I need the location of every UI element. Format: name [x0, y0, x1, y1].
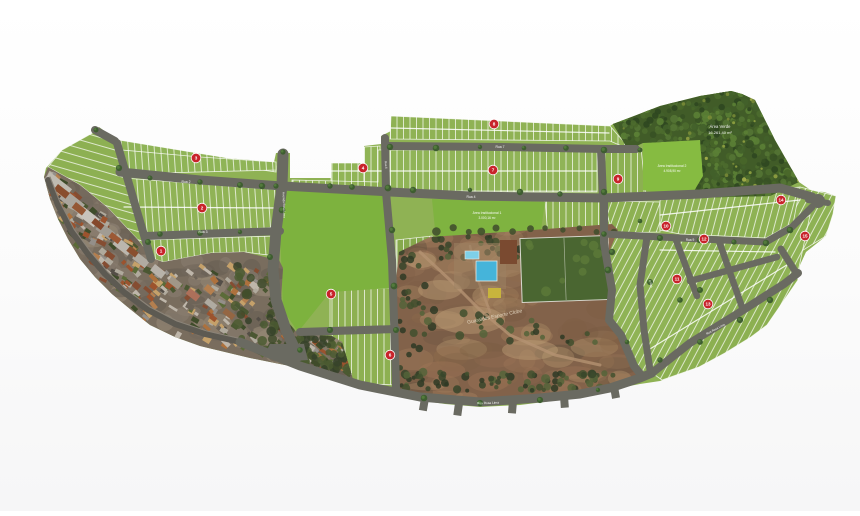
svg-text:8: 8 — [493, 122, 496, 127]
svg-text:Rua 3: Rua 3 — [198, 230, 207, 234]
svg-text:14: 14 — [778, 198, 784, 203]
svg-text:7: 7 — [492, 168, 495, 173]
svg-text:6: 6 — [389, 353, 392, 358]
svg-text:16.261,40 m²: 16.261,40 m² — [708, 130, 732, 135]
svg-text:15: 15 — [802, 234, 808, 239]
svg-text:1: 1 — [160, 249, 163, 254]
svg-text:Área Verde: Área Verde — [710, 124, 732, 129]
svg-text:10: 10 — [663, 224, 669, 229]
svg-text:Rua Rosa Lima: Rua Rosa Lima — [477, 401, 499, 406]
svg-text:Rua 2: Rua 2 — [181, 180, 190, 184]
svg-text:3: 3 — [195, 156, 198, 161]
svg-text:Área Institucional 2: Área Institucional 2 — [658, 164, 687, 168]
svg-text:Rua 4: Rua 4 — [466, 195, 475, 199]
svg-text:4: 4 — [362, 166, 365, 171]
svg-text:9: 9 — [617, 177, 620, 182]
svg-text:4.908,90 m²: 4.908,90 m² — [663, 169, 680, 173]
svg-text:13: 13 — [705, 302, 711, 307]
svg-text:Rua 9: Rua 9 — [686, 238, 695, 242]
svg-text:Rua 7: Rua 7 — [495, 145, 504, 149]
svg-text:Área Institucional 1: Área Institucional 1 — [473, 211, 502, 215]
svg-text:12: 12 — [701, 237, 707, 242]
svg-text:3.000,16 m²: 3.000,16 m² — [478, 216, 495, 220]
svg-text:5: 5 — [330, 292, 333, 297]
svg-text:11: 11 — [675, 277, 680, 282]
svg-text:2: 2 — [201, 206, 204, 211]
svg-text:Rua 6: Rua 6 — [384, 161, 389, 169]
